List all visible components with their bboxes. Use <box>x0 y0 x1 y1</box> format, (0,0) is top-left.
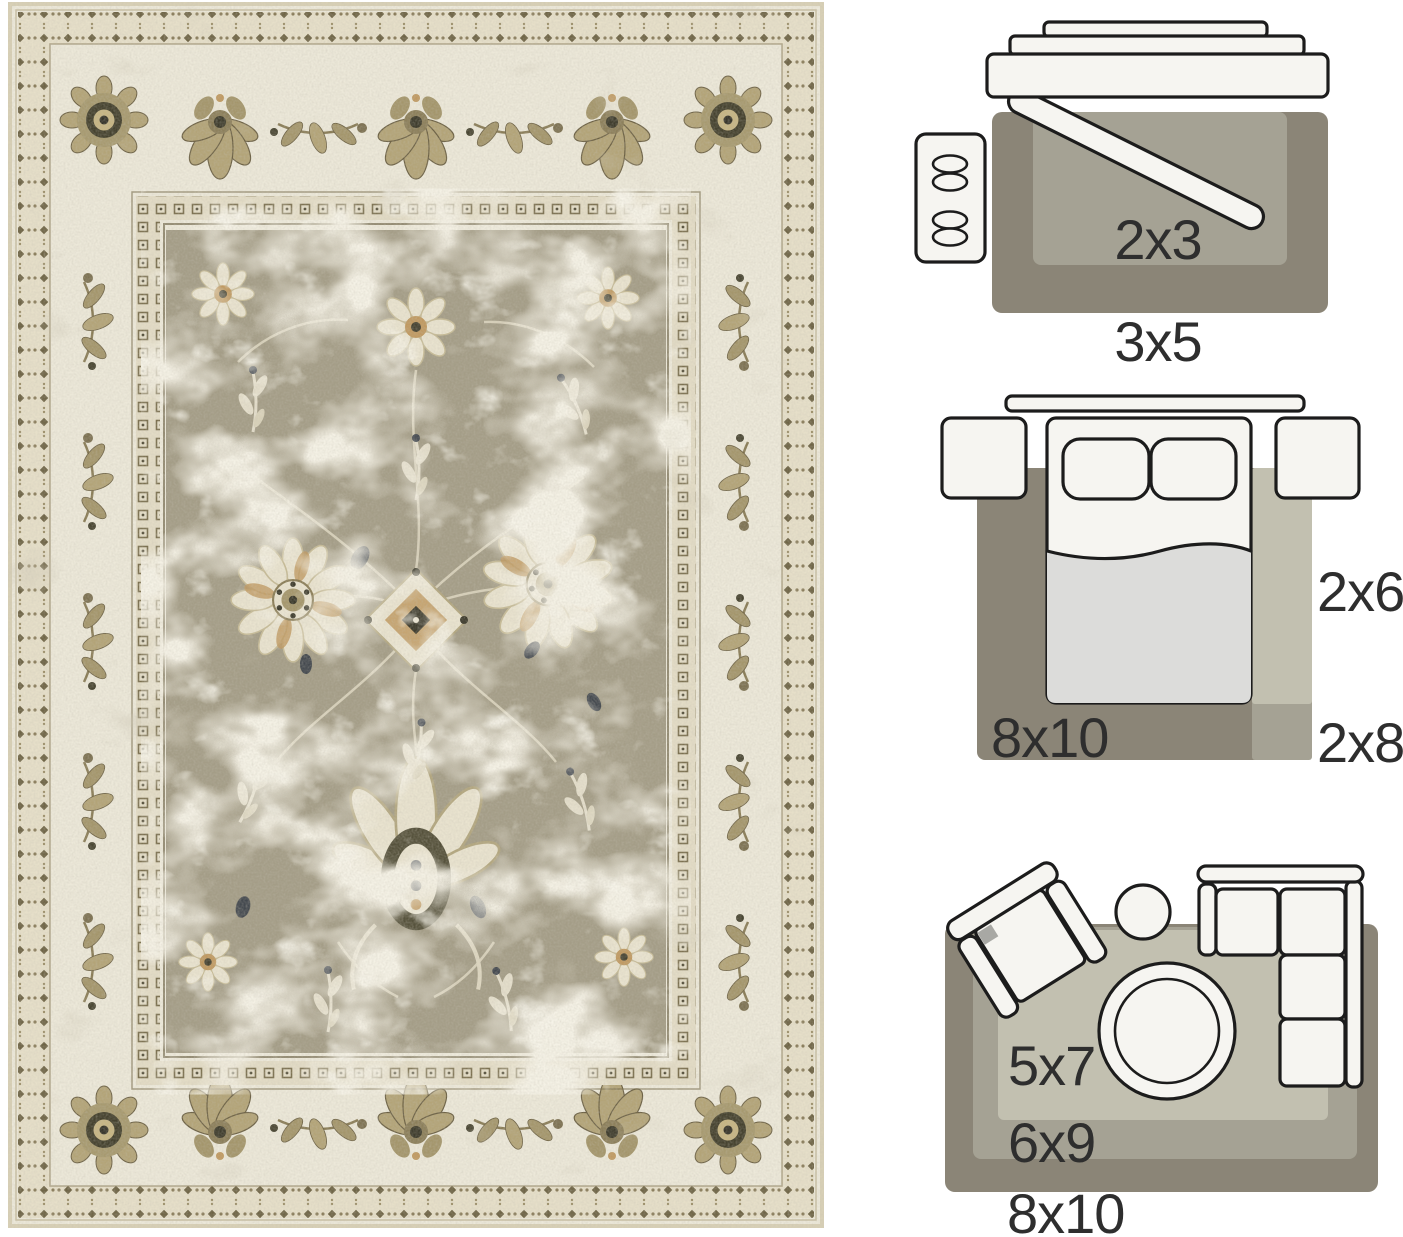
label-6x9: 6x9 <box>1008 1111 1095 1174</box>
label-2x8: 2x8 <box>1317 711 1403 774</box>
product-image: 2x3 3x5 8x10 2x6 2x8 <box>0 0 1403 1237</box>
blanket <box>1047 544 1251 703</box>
coffee-table <box>1099 963 1235 1099</box>
size-guide: 2x3 3x5 8x10 2x6 2x8 <box>880 0 1403 1237</box>
console-shelf-bottom <box>987 54 1328 97</box>
bedroom-runner-2x6 <box>1252 468 1312 704</box>
label-2x6: 2x6 <box>1317 560 1403 623</box>
label-2x3: 2x3 <box>1114 208 1201 271</box>
label-5x7: 5x7 <box>1008 1034 1095 1097</box>
headboard <box>1006 396 1304 411</box>
rug-photo <box>8 2 824 1228</box>
label-8x10-bedroom: 8x10 <box>991 706 1108 769</box>
entryway-diagram: 2x3 3x5 <box>916 22 1328 373</box>
pillow-right <box>1151 439 1236 499</box>
nightstand-left <box>942 418 1026 498</box>
rug-grain-overlay <box>8 2 824 1228</box>
living-room-diagram: 5x7 6x9 8x10 <box>944 860 1378 1237</box>
bedroom-diagram: 8x10 2x6 2x8 <box>942 396 1403 774</box>
pillow-left <box>1063 439 1149 499</box>
side-table <box>1116 885 1170 939</box>
nightstand-right <box>1276 418 1359 498</box>
label-3x5: 3x5 <box>1114 310 1201 373</box>
console-shelf-middle <box>1010 36 1304 55</box>
label-8x10-living: 8x10 <box>1007 1182 1124 1237</box>
